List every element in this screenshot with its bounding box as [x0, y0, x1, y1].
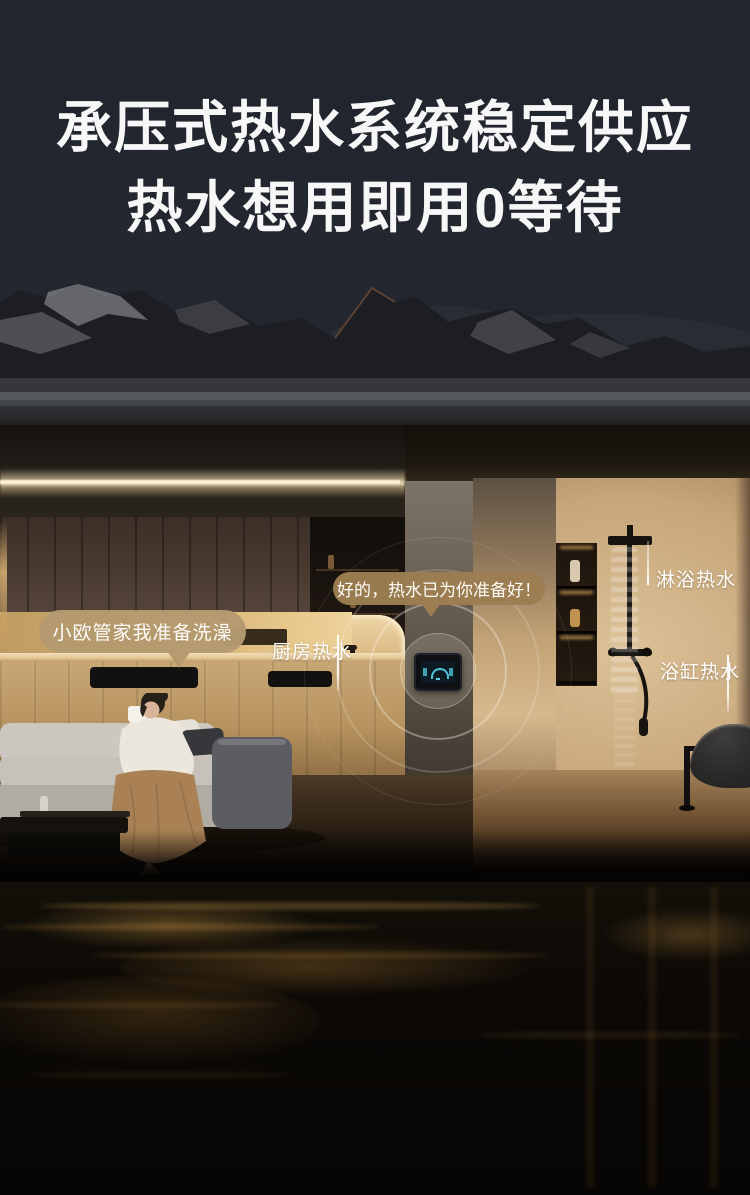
callout-line-bathtub: [727, 655, 729, 713]
water-ripple-line: [0, 924, 380, 930]
water-reflection-streaks: [560, 887, 750, 1187]
speech-bubble-assistant: 好的，热水已为你准备好！: [333, 572, 545, 605]
water-ripple-line: [40, 902, 540, 910]
left-edge-light: [0, 520, 7, 650]
hero-title-line2: 热水想用即用0等待: [0, 168, 750, 248]
ceiling-cove-core: [0, 480, 400, 484]
promo-page: 承压式热水系统稳定供应 热水想用即用0等待: [0, 0, 750, 1195]
hero-title: 承压式热水系统稳定供应 热水想用即用0等待: [0, 88, 750, 248]
callout-shower-hot-water: 淋浴热水: [656, 565, 736, 592]
niche-cell: [557, 544, 596, 589]
niche-bottle: [570, 560, 580, 582]
scene-bottom-fade: [0, 830, 750, 882]
speech-bubble-user-text: 小欧管家我准备洗澡: [52, 618, 232, 645]
speech-bubble-user: 小欧管家我准备洗澡: [39, 610, 246, 653]
water-glint: [0, 977, 320, 1067]
device-arc-gauge: [431, 668, 449, 679]
kitchen-upper-cabinets: [0, 517, 310, 613]
water-ripple-line: [30, 1072, 290, 1078]
speech-bubble-user-tail: [167, 651, 191, 668]
device-right-widget: [449, 668, 453, 676]
niche-glow-light: [560, 546, 593, 549]
shower-water: [611, 547, 638, 697]
water-ripple-line: [90, 952, 550, 959]
shelf-bottle: [328, 555, 334, 569]
interior-scene: 小欧管家我准备洗澡 好的，热水已为你准备好！ 厨房热水 淋浴热水 浴缸热水: [0, 425, 750, 882]
device-indicator: [436, 678, 440, 680]
niche-bottle: [570, 609, 580, 627]
device-screen: [421, 661, 455, 683]
hero-title-line1: 承压式热水系统稳定供应: [0, 88, 750, 168]
mountain-graphic: [0, 262, 750, 412]
niche-glow-light: [560, 591, 593, 594]
water-section: 等待 水量充沛 连续用 冷水: [0, 882, 750, 1195]
cooktop: [90, 667, 198, 688]
terrace-band: [0, 406, 750, 426]
callout-kitchen-hot-water: 厨房热水: [272, 637, 352, 664]
callout-line-shower: [647, 541, 649, 585]
hero-section: 承压式热水系统稳定供应 热水想用即用0等待: [0, 0, 750, 425]
ceiling-right: [405, 425, 750, 481]
speech-bubble-assistant-tail: [421, 603, 441, 617]
smart-control-panel: [414, 653, 462, 691]
device-left-widget: [423, 668, 427, 676]
shower-water-lower: [614, 690, 635, 770]
speech-bubble-assistant-text: 好的，热水已为你准备好！: [337, 576, 541, 601]
callout-line-kitchen: [337, 635, 339, 691]
